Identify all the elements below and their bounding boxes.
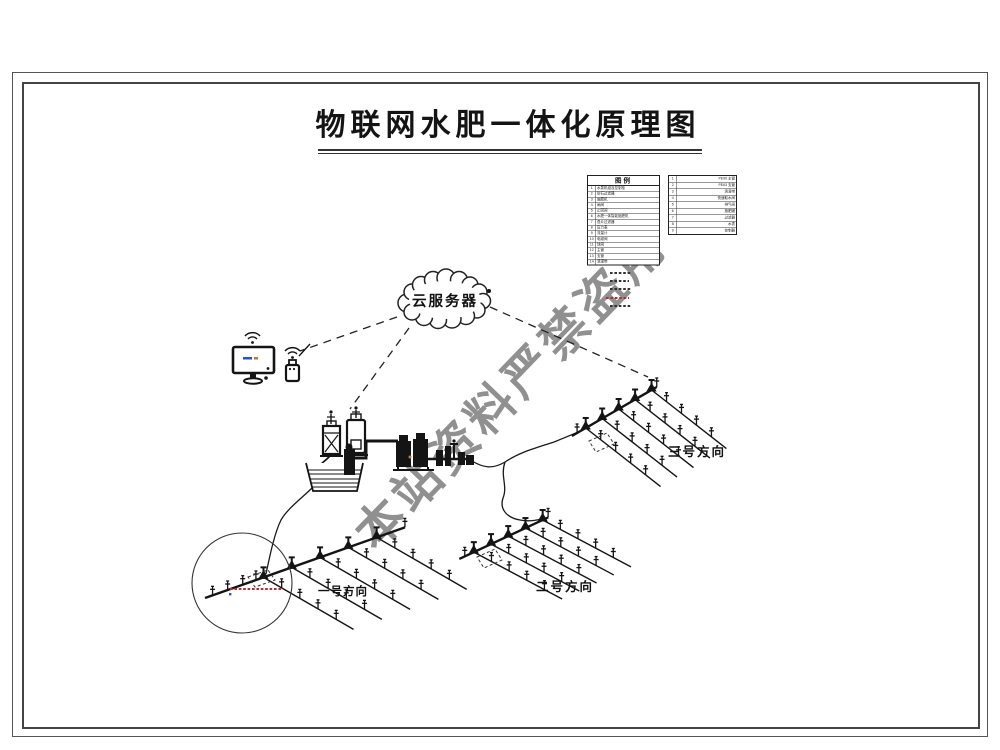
field-1 (205, 518, 467, 629)
legend-table-secondary: 1PE90 主管2PE63 支管3滴灌带4快速取水阀5排气阀6施肥罐7过滤器8水… (668, 175, 737, 235)
legend-header: 图例 (588, 176, 659, 186)
cloud-server-label: 云服务器 (405, 290, 485, 311)
legend-row: 14滴灌带 (588, 259, 659, 264)
field-3-label: 三号方向 (668, 441, 726, 460)
monitor-icon (233, 333, 274, 384)
title-underline (318, 149, 702, 154)
detail-callout-circle (192, 533, 292, 633)
wireless-links (300, 307, 648, 409)
field-2-label: 二号方向 (536, 576, 594, 595)
legend-row: 9控制器 (669, 228, 736, 234)
page-title: 物联网水肥一体化原理图 (300, 100, 716, 144)
mobile-logger-icon (285, 344, 310, 381)
field-3 (572, 378, 727, 487)
feed-pipelines (266, 416, 605, 574)
legend-table-primary: 图例 1水泵机组及控制柜2砂石过滤器3施肥机4闸阀5止回阀6水肥一体智能施肥机7… (587, 175, 660, 266)
irrigation-fields (205, 378, 726, 629)
field-1-label: 一号方向 (318, 583, 368, 599)
legend-note-lines (606, 273, 631, 306)
fertilizer-tank-icon (315, 406, 368, 470)
